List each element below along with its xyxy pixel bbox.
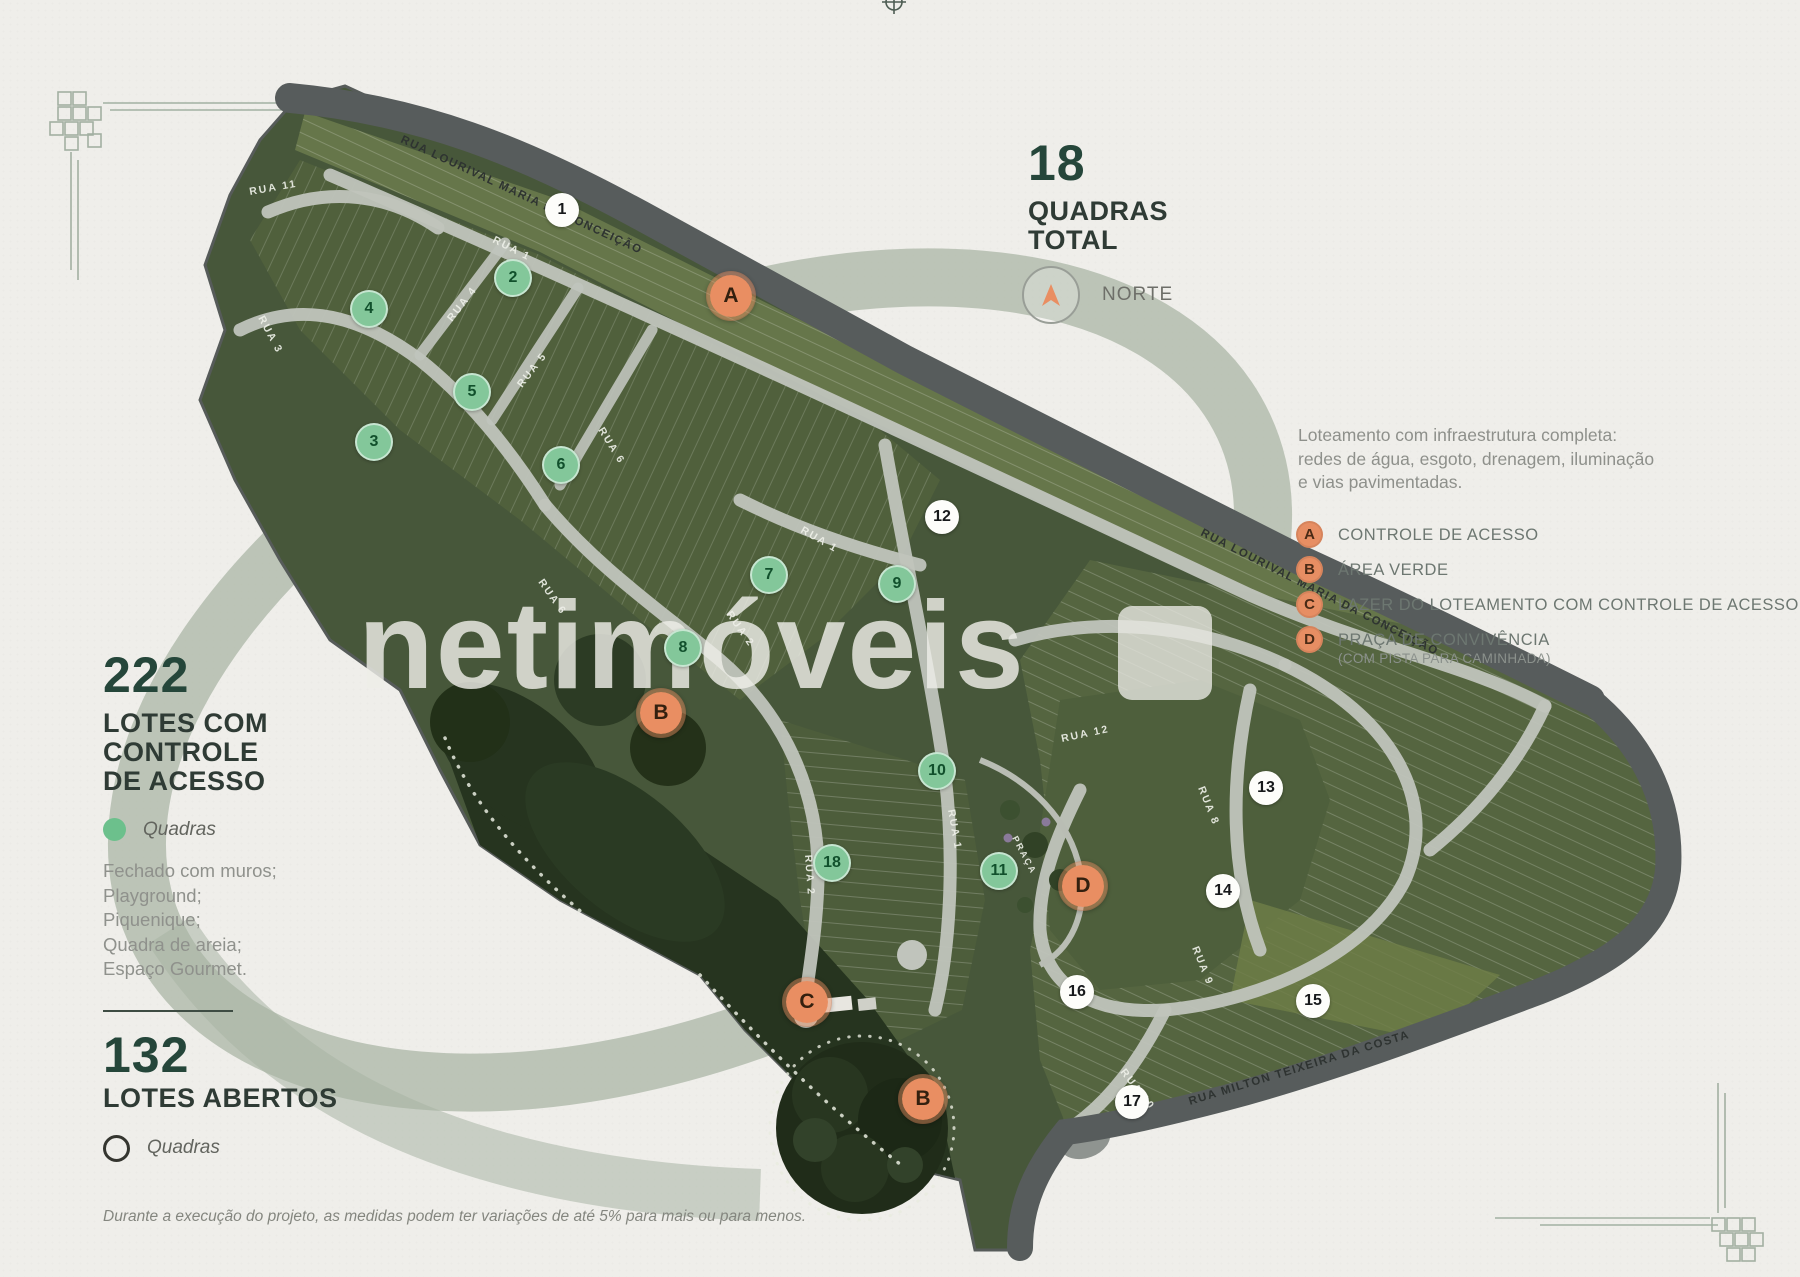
- watermark-logo-mark: [1118, 606, 1212, 700]
- open-lots-panel: 132 LOTES ABERTOS Quadras: [103, 1030, 403, 1162]
- amenity-item: Quadra de areia;: [103, 933, 403, 958]
- closed-lots-count: 222: [103, 650, 403, 700]
- poi-legend: A CONTROLE DE ACESSO B ÁREA VERDE C LAZE…: [1296, 521, 1799, 675]
- watermark-logo: netimóveis: [358, 584, 1026, 708]
- legend-c-badge: C: [1296, 591, 1323, 618]
- masterplan-poster: RUA LOURIVAL MARIA DA CONCEIÇÃO RUA LOUR…: [0, 0, 1800, 1277]
- legend-a-badge: A: [1296, 521, 1323, 548]
- infrastructure-text: Loteamento com infraestrutura completa: …: [1298, 424, 1654, 495]
- closed-quadras-legend-label: Quadras: [143, 819, 216, 841]
- legend-a-label: CONTROLE DE ACESSO: [1338, 526, 1539, 544]
- open-quadras-legend: Quadras: [103, 1135, 403, 1162]
- legend-item-b: B ÁREA VERDE: [1296, 556, 1799, 583]
- disclaimer-text: Durante a execução do projeto, as medida…: [103, 1208, 806, 1226]
- north-label: NORTE: [1102, 284, 1173, 306]
- closed-lots-label: LOTES COM CONTROLE DE ACESSO: [103, 709, 403, 796]
- amenity-item: Fechado com muros;: [103, 859, 403, 884]
- legend-item-a: A CONTROLE DE ACESSO: [1296, 521, 1799, 548]
- north-indicator: NORTE: [1022, 266, 1173, 324]
- legend-c-label: LAZER DO LOTEAMENTO COM CONTROLE DE ACES…: [1338, 596, 1799, 614]
- quadras-total-panel: 18 QUADRAS TOTAL: [1028, 138, 1168, 255]
- panel-divider: [103, 1010, 233, 1012]
- amenities-list: Fechado com muros; Playground; Piqueniqu…: [103, 859, 403, 982]
- legend-item-c: C LAZER DO LOTEAMENTO COM CONTROLE DE AC…: [1296, 591, 1799, 618]
- green-quadra-dot-icon: [103, 818, 126, 841]
- legend-d-badge: D: [1296, 626, 1323, 653]
- legend-b-badge: B: [1296, 556, 1323, 583]
- closed-quadras-legend: Quadras: [103, 818, 403, 841]
- open-lots-count: 132: [103, 1030, 403, 1080]
- amenity-item: Playground;: [103, 884, 403, 909]
- quadras-total-label: QUADRAS TOTAL: [1028, 197, 1168, 255]
- legend-d-label: PRAÇA DE CONVIVÊNCIA (COM PISTA PARA CAM…: [1338, 631, 1551, 667]
- open-quadras-legend-label: Quadras: [147, 1137, 220, 1159]
- amenity-item: Espaço Gourmet.: [103, 957, 403, 982]
- legend-item-d: D PRAÇA DE CONVIVÊNCIA (COM PISTA PARA C…: [1296, 626, 1799, 667]
- quadras-total-count: 18: [1028, 138, 1168, 188]
- closed-lots-panel: 222 LOTES COM CONTROLE DE ACESSO Quadras…: [103, 650, 403, 1162]
- legend-b-label: ÁREA VERDE: [1338, 561, 1448, 579]
- legend-d-sublabel: (COM PISTA PARA CAMINHADA): [1338, 652, 1551, 667]
- open-quadra-dot-icon: [103, 1135, 130, 1162]
- open-lots-label: LOTES ABERTOS: [103, 1084, 403, 1113]
- amenity-item: Piquenique;: [103, 908, 403, 933]
- north-compass-icon: [1022, 266, 1080, 324]
